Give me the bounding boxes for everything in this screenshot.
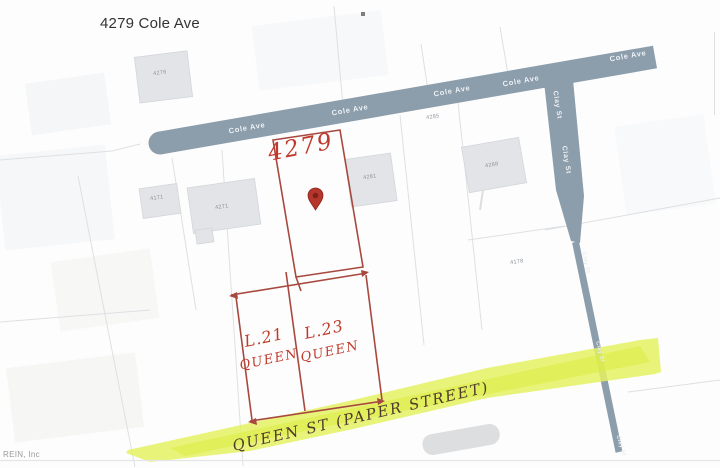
watermark: REIN, Inc — [3, 451, 40, 459]
map-drawing-layer — [0, 0, 720, 468]
plat-map: 4279 Cole Ave Cole Ave Cole Ave Cole Ave… — [0, 0, 720, 468]
building-4271 — [187, 178, 262, 244]
map-pin-icon — [308, 188, 323, 210]
gray-smudge — [421, 422, 501, 456]
building-4288-walkway — [480, 190, 483, 210]
page-title: 4279 Cole Ave — [100, 16, 200, 31]
building-4276 — [134, 51, 192, 103]
